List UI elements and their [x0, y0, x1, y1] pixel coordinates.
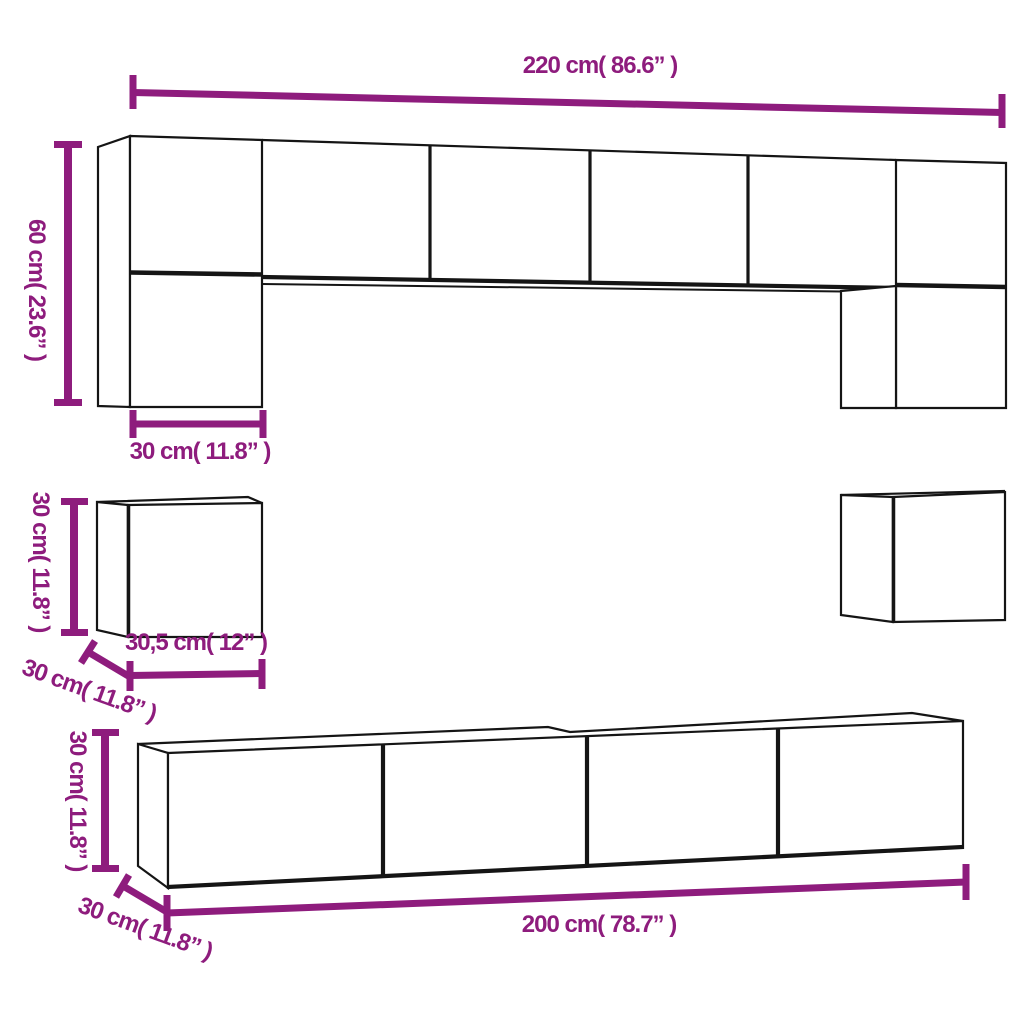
- tv-stand: [138, 713, 963, 888]
- middle-row-top-edge: [262, 140, 896, 160]
- wall-unit-top: [98, 136, 1006, 408]
- right-cabinet-side-panel: [841, 286, 896, 408]
- dim-label-wall-height: 60 cm( 23.6” ): [24, 219, 48, 361]
- dim-cube-depth-line: [88, 652, 130, 677]
- stand-side-panel: [138, 744, 168, 888]
- dim-label-cube-width: 30,5 cm( 12” ): [125, 631, 267, 655]
- cube-right-side-panel: [841, 495, 893, 622]
- wall-cube-right: [841, 491, 1005, 622]
- dim-wall-width-line: [133, 93, 1002, 113]
- cube-left-top-edge: [97, 497, 262, 503]
- left-cabinet-side-panel: [98, 136, 130, 407]
- furniture-dimension-diagram: 220 cm( 86.6” ) 60 cm( 23.6” ) 30 cm( 11…: [0, 0, 1024, 1024]
- dim-label-stand-height: 30 cm( 11.8” ): [65, 731, 89, 872]
- dim-label-cube-height: 30 cm( 11.8” ): [28, 492, 52, 633]
- cube-left-side-panel: [97, 502, 128, 637]
- dim-cube-width-line: [130, 674, 262, 676]
- cube-right-front: [893, 492, 1005, 622]
- left-cabinet-door-gap: [130, 273, 262, 275]
- stand-front: [168, 721, 963, 888]
- dim-label-wall-width: 220 cm( 86.6” ): [523, 54, 677, 78]
- diagram-linework: [0, 0, 1024, 1024]
- dim-label-wall-depth: 30 cm( 11.8” ): [130, 440, 271, 464]
- middle-row-bottom-edge: [262, 277, 896, 288]
- dim-stand-width-line: [167, 882, 966, 913]
- cube-left-front: [128, 503, 262, 637]
- right-cabinet-door-gap: [896, 285, 1006, 287]
- wall-cube-left: [97, 497, 262, 637]
- dim-label-stand-width: 200 cm( 78.7” ): [522, 913, 676, 937]
